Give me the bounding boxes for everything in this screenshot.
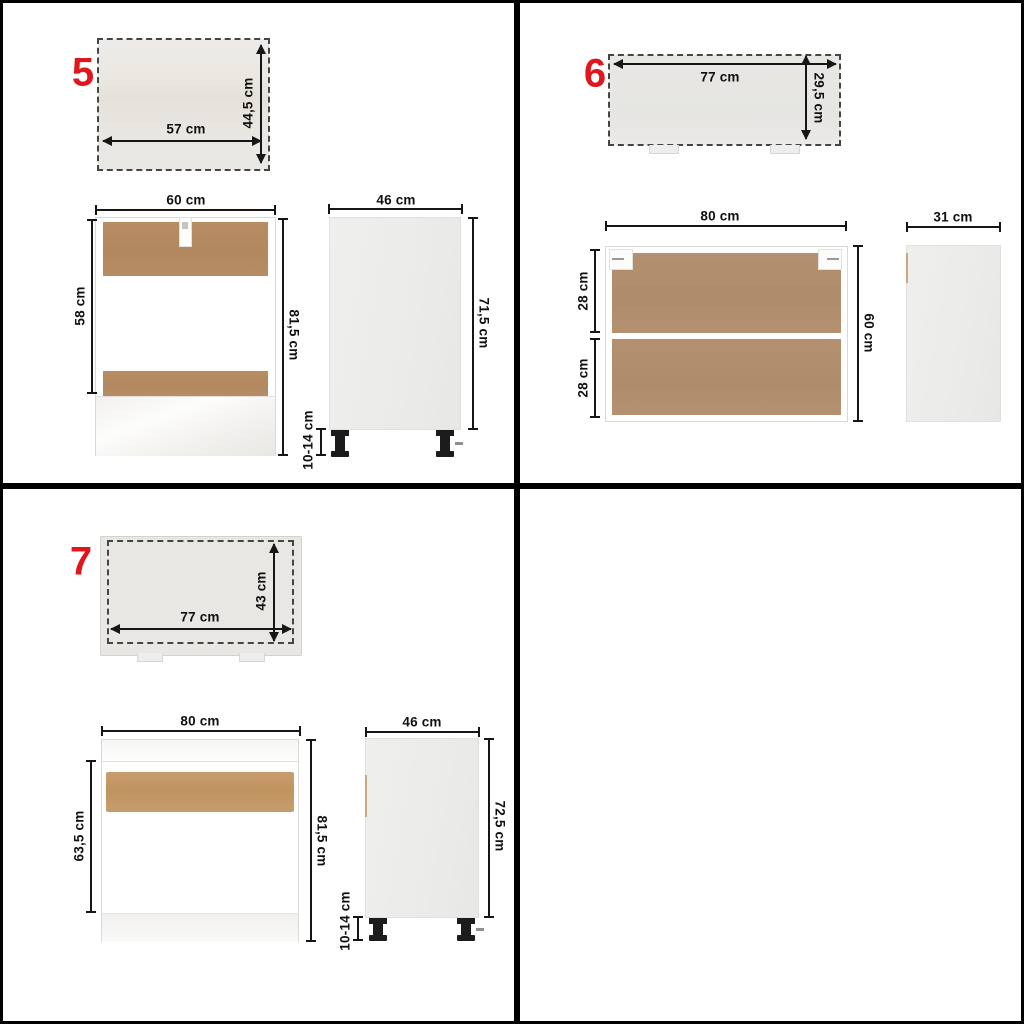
item6-upper-section-label: 28 cm: [576, 271, 591, 310]
item5-leg-front-icon: [335, 430, 345, 457]
vertical-divider: [514, 3, 520, 1024]
item6-lower-section-label: 28 cm: [576, 358, 591, 397]
item5-panel-width-arrow: [103, 140, 261, 142]
item7-side-view: [365, 738, 479, 918]
item5-front-height-label: 81,5 cm: [287, 310, 302, 361]
item6-panel-foot-right: [770, 145, 800, 154]
item7-side-depth-label: 46 cm: [402, 715, 441, 730]
item5-front-interior-label: 58 cm: [73, 286, 88, 325]
item5-legs-label: 10-14 cm: [301, 410, 316, 469]
item7-panel-width-label: 77 cm: [180, 610, 219, 625]
item7-panel-width-arrow: [111, 628, 291, 630]
item6-panel-height-label: 29,5 cm: [812, 73, 827, 124]
item7-side-height-dim: [488, 738, 490, 918]
item6-front-width-dim: [605, 225, 847, 227]
item5-panel-height-label: 44,5 cm: [241, 78, 256, 129]
item5-front-height-dim: [282, 218, 284, 456]
item7-panel-foot-left: [137, 653, 163, 662]
item6-side-depth-dim: [906, 226, 1001, 228]
item5-drawer-front: [96, 396, 275, 456]
item5-side-view: [329, 217, 461, 430]
item6-bracket-pin-right: [827, 258, 839, 260]
item5-front-width-label: 60 cm: [166, 193, 205, 208]
item6-front-width-label: 80 cm: [700, 209, 739, 224]
item7-back-panel-strip: [106, 772, 294, 812]
item5-back-panel-bottom: [103, 371, 268, 396]
item5-front-interior-dim: [91, 219, 93, 394]
item6-front-height-label: 60 cm: [862, 313, 877, 352]
horizontal-divider: [3, 483, 1024, 489]
item6-back-panel-bottom: [612, 339, 841, 415]
item7-front-width-label: 80 cm: [180, 714, 219, 729]
item7-plinth: [102, 913, 298, 942]
item7-leg-front-icon: [373, 918, 383, 941]
item7-front-view: [101, 739, 299, 942]
item5-notch-hole: [182, 222, 188, 229]
item6-panel-height-arrow: [805, 56, 807, 139]
item7-legs-dim: [357, 916, 359, 941]
item5-side-height-dim: [472, 217, 474, 430]
item6-side-edge-sliver: [906, 253, 908, 283]
item7-panel-foot-right: [239, 653, 265, 662]
item5-side-depth-label: 46 cm: [376, 193, 415, 208]
item7-front-width-dim: [101, 730, 301, 732]
item7-top-rail: [102, 740, 298, 762]
item6-lower-section-dim: [594, 338, 596, 418]
item5-side-depth-dim: [328, 208, 463, 210]
item5-number: 5: [72, 51, 94, 96]
item5-leg-adjuster-mark: [455, 442, 463, 445]
item7-front-height-label: 81,5 cm: [315, 816, 330, 867]
item5-front-width-dim: [95, 209, 276, 211]
item7-leg-back-icon: [461, 918, 471, 941]
item6-number: 6: [584, 52, 606, 97]
item7-side-height-label: 72,5 cm: [493, 801, 508, 852]
item7-front-height-dim: [310, 739, 312, 942]
item6-panel-foot-left: [649, 145, 679, 154]
item5-panel-height-arrow: [260, 45, 262, 163]
item5-panel-width-label: 57 cm: [166, 122, 205, 137]
item7-number: 7: [70, 540, 92, 585]
dimension-sheet: 5 57 cm 44,5 cm 60 cm 58 cm 81,5 cm 46 c…: [0, 0, 1024, 1024]
item7-panel-height-arrow: [273, 544, 275, 641]
item6-panel-width-label: 77 cm: [700, 70, 739, 85]
item7-legs-label: 10-14 cm: [338, 891, 353, 950]
item7-leg-adjuster-mark: [476, 928, 484, 931]
item5-legs-dim: [320, 428, 322, 456]
item6-side-depth-label: 31 cm: [933, 210, 972, 225]
item6-side-view: [906, 245, 1001, 422]
item7-panel-height-label: 43 cm: [254, 571, 269, 610]
item6-bracket-pin-left: [612, 258, 624, 260]
item5-side-height-label: 71,5 cm: [477, 298, 492, 349]
item7-side-edge-sliver: [365, 775, 367, 817]
item6-back-panel-top: [612, 253, 841, 333]
item7-front-interior-dim: [90, 760, 92, 913]
item5-leg-back-icon: [440, 430, 450, 457]
item6-front-height-dim: [857, 245, 859, 422]
item7-side-depth-dim: [365, 731, 480, 733]
item7-front-interior-label: 63,5 cm: [72, 811, 87, 862]
item6-upper-section-dim: [594, 249, 596, 333]
